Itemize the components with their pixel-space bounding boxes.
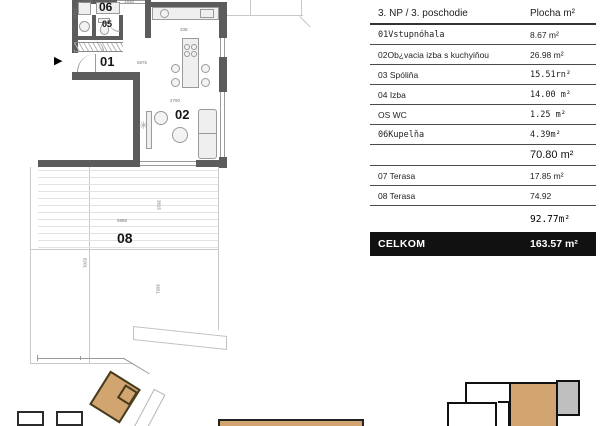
row-value: 4.39m² — [530, 130, 596, 140]
terrace-edge — [30, 167, 31, 363]
site-building — [17, 411, 44, 426]
row-label: OS WC — [370, 110, 530, 120]
row-value: 70.80 m² — [530, 149, 596, 161]
site-boundary — [123, 358, 149, 374]
sink-icon — [160, 9, 169, 18]
header-floor: 3. NP / 3. poschodie — [370, 8, 530, 19]
row-value: 14.00 m² — [530, 90, 596, 100]
stool — [171, 64, 180, 73]
row-value: 26.98 m² — [530, 50, 596, 60]
row-value: 8.67 m² — [530, 30, 596, 40]
row-label: 02Ob¿vacia izba s kuchyiňou — [370, 50, 530, 60]
subtotal-row: 70.80 m² — [370, 145, 596, 166]
keyplan-unit — [447, 402, 497, 426]
stool — [201, 64, 210, 73]
burner-icon — [191, 44, 197, 50]
dimension: 2188 — [82, 0, 92, 5]
terrace7-edge — [227, 15, 303, 16]
dimension: 3651 — [155, 284, 160, 294]
burner-icon — [191, 51, 197, 57]
keyplan-highlighted-unit — [509, 382, 558, 426]
stool — [201, 78, 210, 87]
table-row: 06Kupelňa 4.39m² — [370, 125, 596, 145]
table-row: 08 Terasa 74.92 — [370, 186, 596, 206]
row-value: 92.77m² — [530, 214, 596, 225]
wall — [196, 160, 227, 167]
washbasin-icon — [79, 21, 90, 32]
site-tick — [80, 356, 81, 360]
row-value: 15.51rn² — [530, 70, 596, 80]
key-plan — [440, 375, 600, 426]
dimension: 2414 — [72, 8, 77, 18]
round-table — [172, 127, 188, 143]
wall — [219, 57, 227, 92]
cooktop — [200, 9, 214, 18]
row-label: 08 Terasa — [370, 191, 530, 201]
dimension: 8201 — [82, 258, 87, 268]
entrance-arrow-icon: ▶ — [54, 56, 62, 67]
site-building — [56, 411, 83, 426]
table-row: 01Vstupnóhala 8.67 m² — [370, 25, 596, 45]
table-header: 3. NP / 3. poschodie Plocha m² — [370, 4, 596, 25]
header-area: Plocha m² — [530, 8, 596, 19]
row-value: 1.25 m² — [530, 110, 596, 120]
room-label-hall: 01 — [100, 55, 114, 68]
total-row: CELKOM 163.57 m² — [370, 232, 596, 256]
dimension: 6875 — [137, 61, 147, 66]
row-label: 04 Izba — [370, 90, 530, 100]
dimension: 1930 — [124, 0, 134, 5]
dimension: 338 — [180, 28, 188, 33]
total-value: 163.57 m² — [530, 238, 596, 250]
terrace-step — [133, 326, 227, 350]
area-table: 3. NP / 3. poschodie Plocha m² 01Vstupnó… — [370, 4, 596, 256]
row-label: 06Kupelňa — [370, 130, 530, 140]
total-label: CELKOM — [370, 238, 530, 250]
armchair — [154, 111, 168, 125]
room-label-living: 02 — [175, 108, 189, 121]
stool — [171, 78, 180, 87]
window — [220, 92, 225, 157]
row-label: 03 Spóliňa — [370, 70, 530, 80]
site-bar — [218, 419, 364, 426]
wall — [219, 4, 227, 38]
floorplan-sheet: ▶ ✳ — [0, 0, 600, 426]
keyplan-core — [556, 380, 580, 416]
row-value: 74.92 — [530, 191, 596, 201]
terrace7-edge — [301, 0, 302, 16]
table-row: 03 Spóliňa 15.51rn² — [370, 65, 596, 85]
door-arc — [77, 54, 95, 72]
site-tick — [37, 355, 38, 361]
burner-icon — [184, 51, 190, 57]
terrace7-edge — [299, 16, 310, 27]
wardrobe — [74, 42, 123, 52]
table-row: 07 Terasa 17.85 m² — [370, 166, 596, 186]
terrace-edge — [30, 249, 219, 250]
table-row: 04 Izba 14.00 m² — [370, 85, 596, 105]
room-label-bath: 06 — [99, 1, 112, 13]
window — [220, 38, 225, 57]
plant-icon: ✳ — [139, 121, 148, 132]
sofa — [198, 109, 217, 159]
row-label: 01Vstupnóhala — [370, 30, 530, 40]
row-label: 07 Terasa — [370, 171, 530, 181]
site-boundary — [37, 358, 125, 359]
sofa-divider — [199, 133, 216, 134]
room-label-terrace: 08 — [117, 231, 133, 245]
dimension: 2790 — [170, 99, 180, 104]
wall — [72, 36, 123, 40]
wall — [38, 160, 140, 167]
subtotal-row: 92.77m² — [370, 206, 596, 232]
site-plan — [0, 350, 360, 426]
dimension: 3815 — [156, 200, 161, 210]
burner-icon — [184, 44, 190, 50]
keyplan-notch — [498, 401, 510, 426]
terrace-door — [140, 161, 196, 166]
room-label-wc: 05 — [102, 20, 112, 29]
table-row: 02Ob¿vacia izba s kuchyiňou 26.98 m² — [370, 45, 596, 65]
door-leaf — [95, 54, 96, 72]
terrace7-edge — [250, 0, 251, 15]
wall — [72, 72, 140, 80]
table-row: OS WC 1.25 m² — [370, 105, 596, 125]
row-value: 17.85 m² — [530, 171, 596, 181]
dimension: 5886 — [117, 219, 127, 224]
